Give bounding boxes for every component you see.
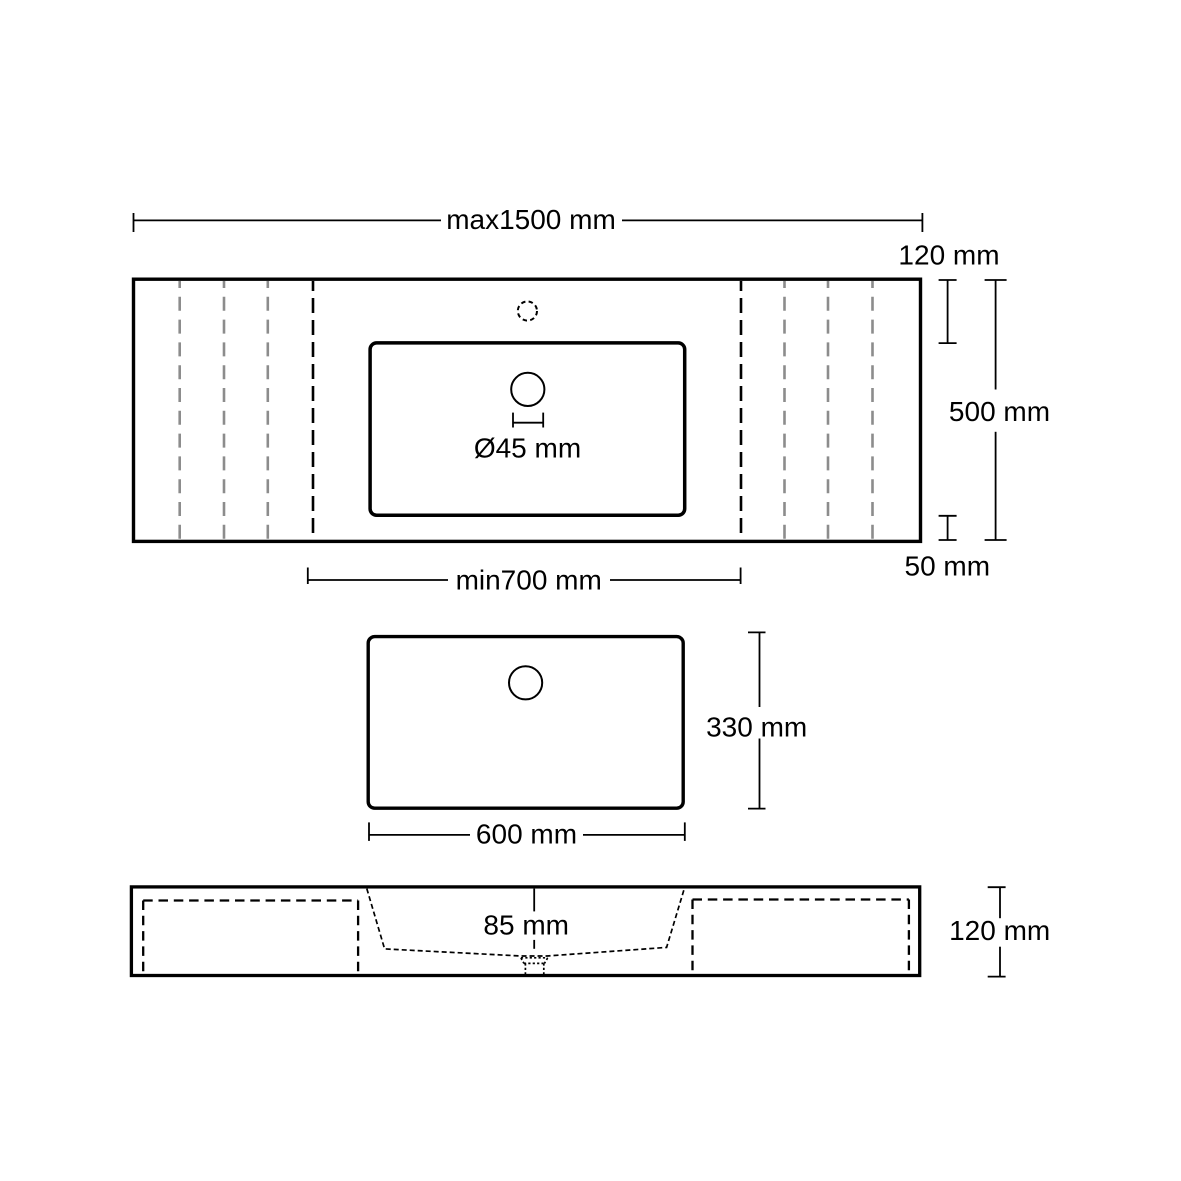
svg-text:85 mm: 85 mm — [483, 909, 569, 940]
svg-text:330 mm: 330 mm — [706, 712, 807, 743]
svg-text:500 mm: 500 mm — [949, 396, 1050, 427]
svg-text:50 mm: 50 mm — [905, 551, 991, 582]
svg-text:Ø45 mm: Ø45 mm — [474, 432, 581, 463]
svg-text:min700 mm: min700 mm — [456, 564, 602, 595]
svg-text:600 mm: 600 mm — [476, 818, 577, 849]
svg-text:120 mm: 120 mm — [898, 240, 999, 271]
svg-text:120 mm: 120 mm — [949, 915, 1050, 946]
svg-text:max1500 mm: max1500 mm — [446, 204, 616, 235]
